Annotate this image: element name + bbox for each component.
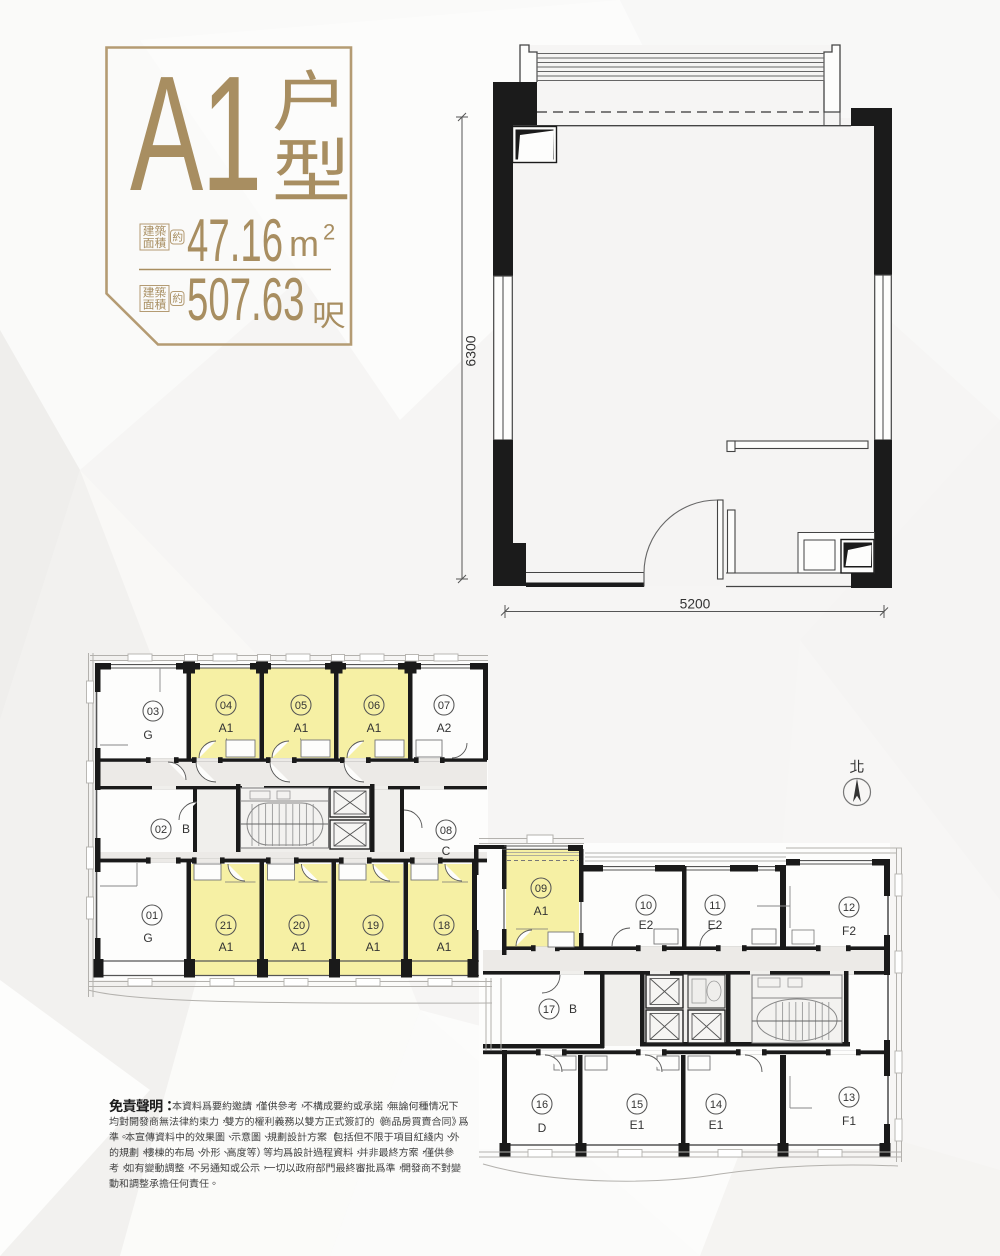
svg-text:17: 17 <box>543 1004 555 1016</box>
svg-text:E1: E1 <box>630 1118 645 1132</box>
svg-text:G: G <box>143 931 152 945</box>
svg-text:09: 09 <box>535 883 547 895</box>
svg-text:E2: E2 <box>708 918 723 932</box>
svg-text:2: 2 <box>323 220 335 245</box>
svg-text:B: B <box>182 822 190 836</box>
svg-text:F2: F2 <box>842 924 856 938</box>
svg-text:m: m <box>289 223 319 264</box>
svg-text:16: 16 <box>536 1099 548 1111</box>
svg-text:A1: A1 <box>294 721 309 735</box>
svg-text:15: 15 <box>631 1099 643 1111</box>
svg-text:5200: 5200 <box>680 597 711 612</box>
svg-text:G: G <box>143 728 152 742</box>
svg-text:13: 13 <box>843 1092 855 1104</box>
svg-text:11: 11 <box>709 900 720 912</box>
svg-text:A1: A1 <box>437 940 452 954</box>
svg-text:19: 19 <box>367 920 379 932</box>
svg-text:A1: A1 <box>130 42 260 225</box>
svg-text:21: 21 <box>220 920 232 932</box>
svg-text:08: 08 <box>440 825 452 837</box>
svg-text:A2: A2 <box>437 721 452 735</box>
svg-text:06: 06 <box>368 700 380 712</box>
svg-text:E2: E2 <box>639 918 654 932</box>
svg-text:A1: A1 <box>292 940 307 954</box>
svg-text:10: 10 <box>640 900 652 912</box>
svg-text:02: 02 <box>155 824 167 836</box>
svg-text:20: 20 <box>293 920 305 932</box>
svg-text:A1: A1 <box>367 721 382 735</box>
svg-text:507.63: 507.63 <box>187 265 304 333</box>
svg-text:47.16: 47.16 <box>187 206 283 274</box>
svg-text:04: 04 <box>220 700 232 712</box>
svg-text:B: B <box>569 1002 577 1016</box>
svg-text:E1: E1 <box>709 1118 724 1132</box>
svg-text:A1: A1 <box>534 904 549 918</box>
svg-text:01: 01 <box>146 910 158 922</box>
svg-text:D: D <box>538 1121 547 1135</box>
svg-text:A1: A1 <box>219 721 234 735</box>
svg-text:6300: 6300 <box>463 335 479 366</box>
svg-text:07: 07 <box>438 700 450 712</box>
svg-text:05: 05 <box>295 700 307 712</box>
svg-text:C: C <box>442 844 451 858</box>
svg-text:03: 03 <box>147 706 159 718</box>
svg-text:14: 14 <box>710 1099 722 1111</box>
svg-text:12: 12 <box>843 902 855 914</box>
svg-text:18: 18 <box>438 920 450 932</box>
svg-text:A1: A1 <box>219 940 234 954</box>
svg-text:A1: A1 <box>366 940 381 954</box>
svg-text:F1: F1 <box>842 1114 856 1128</box>
